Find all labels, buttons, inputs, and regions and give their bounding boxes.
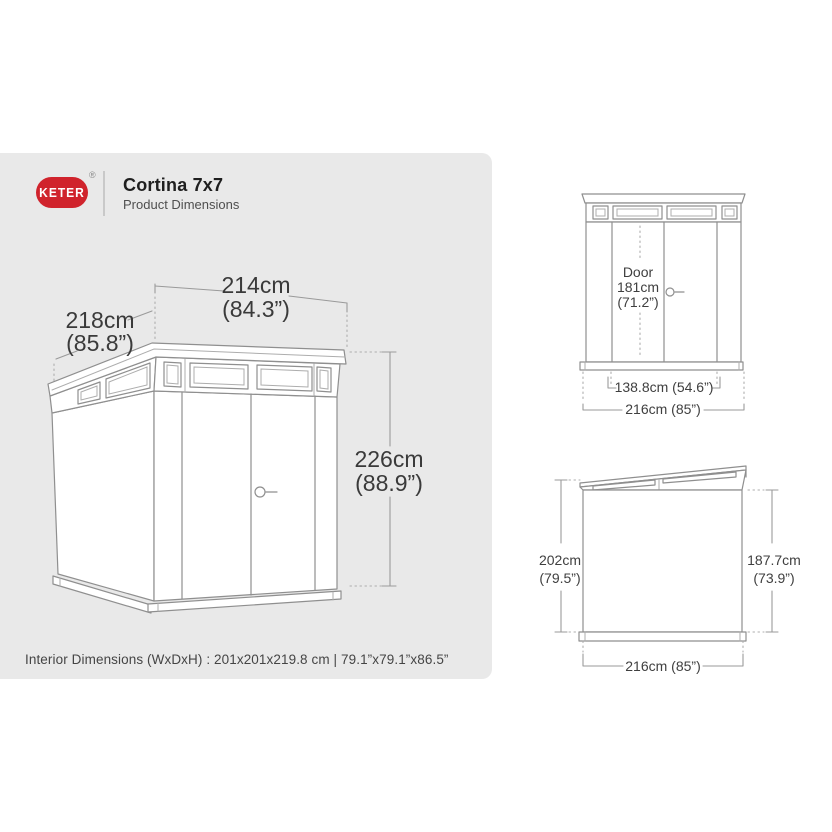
side-front-height-in: (79.5”) <box>539 570 580 586</box>
side-rear-height-dimension: 187.7cm (73.9”) <box>747 490 801 632</box>
iso-width-cm: 214cm <box>221 272 290 298</box>
front-door-width-dimension: 138.8cm (54.6”) <box>608 372 720 395</box>
front-roof-cap <box>582 194 745 203</box>
side-front-height-cm: 202cm <box>539 552 581 568</box>
iso-height-in: (88.9”) <box>355 470 423 496</box>
side-front-height-dimension: 202cm (79.5”) <box>539 480 581 632</box>
front-door-width: 138.8cm (54.6”) <box>615 379 714 395</box>
front-base <box>580 362 743 370</box>
page: KETER ® Cortina 7x7 Product Dimensions I… <box>0 0 832 832</box>
side-base <box>579 632 746 641</box>
side-depth: 216cm (85”) <box>625 658 700 674</box>
front-door-word: Door <box>623 264 654 280</box>
iso-width-in: (84.3”) <box>222 296 290 322</box>
side-rear-height-cm: 187.7cm <box>747 552 801 568</box>
iso-width-dimension: 214cm (84.3”) <box>155 272 347 349</box>
side-elevation-view: 202cm (79.5”) 187.7cm (73.9”) <box>539 466 801 674</box>
side-depth-dimension: 216cm (85”) <box>583 641 743 674</box>
front-elevation-view: Door 181cm (71.2”) 138.8cm (54.6”) 216cm… <box>580 194 745 417</box>
front-overall-width: 216cm (85”) <box>625 401 700 417</box>
iso-left-wall <box>52 391 154 601</box>
diagrams-svg: 214cm (84.3”) 218cm (85.8”) 226cm (88.9”… <box>0 0 832 832</box>
front-door-height-cm: 181cm <box>617 279 659 295</box>
iso-depth-in: (85.8”) <box>66 330 134 356</box>
isometric-view: 214cm (84.3”) 218cm (85.8”) 226cm (88.9”… <box>48 272 424 613</box>
iso-height-cm: 226cm <box>354 446 423 472</box>
iso-height-dimension: 226cm (88.9”) <box>350 352 424 586</box>
front-door-height-in: (71.2”) <box>617 294 658 310</box>
side-wall <box>583 490 742 632</box>
front-band <box>586 203 741 222</box>
side-rear-height-in: (73.9”) <box>753 570 794 586</box>
